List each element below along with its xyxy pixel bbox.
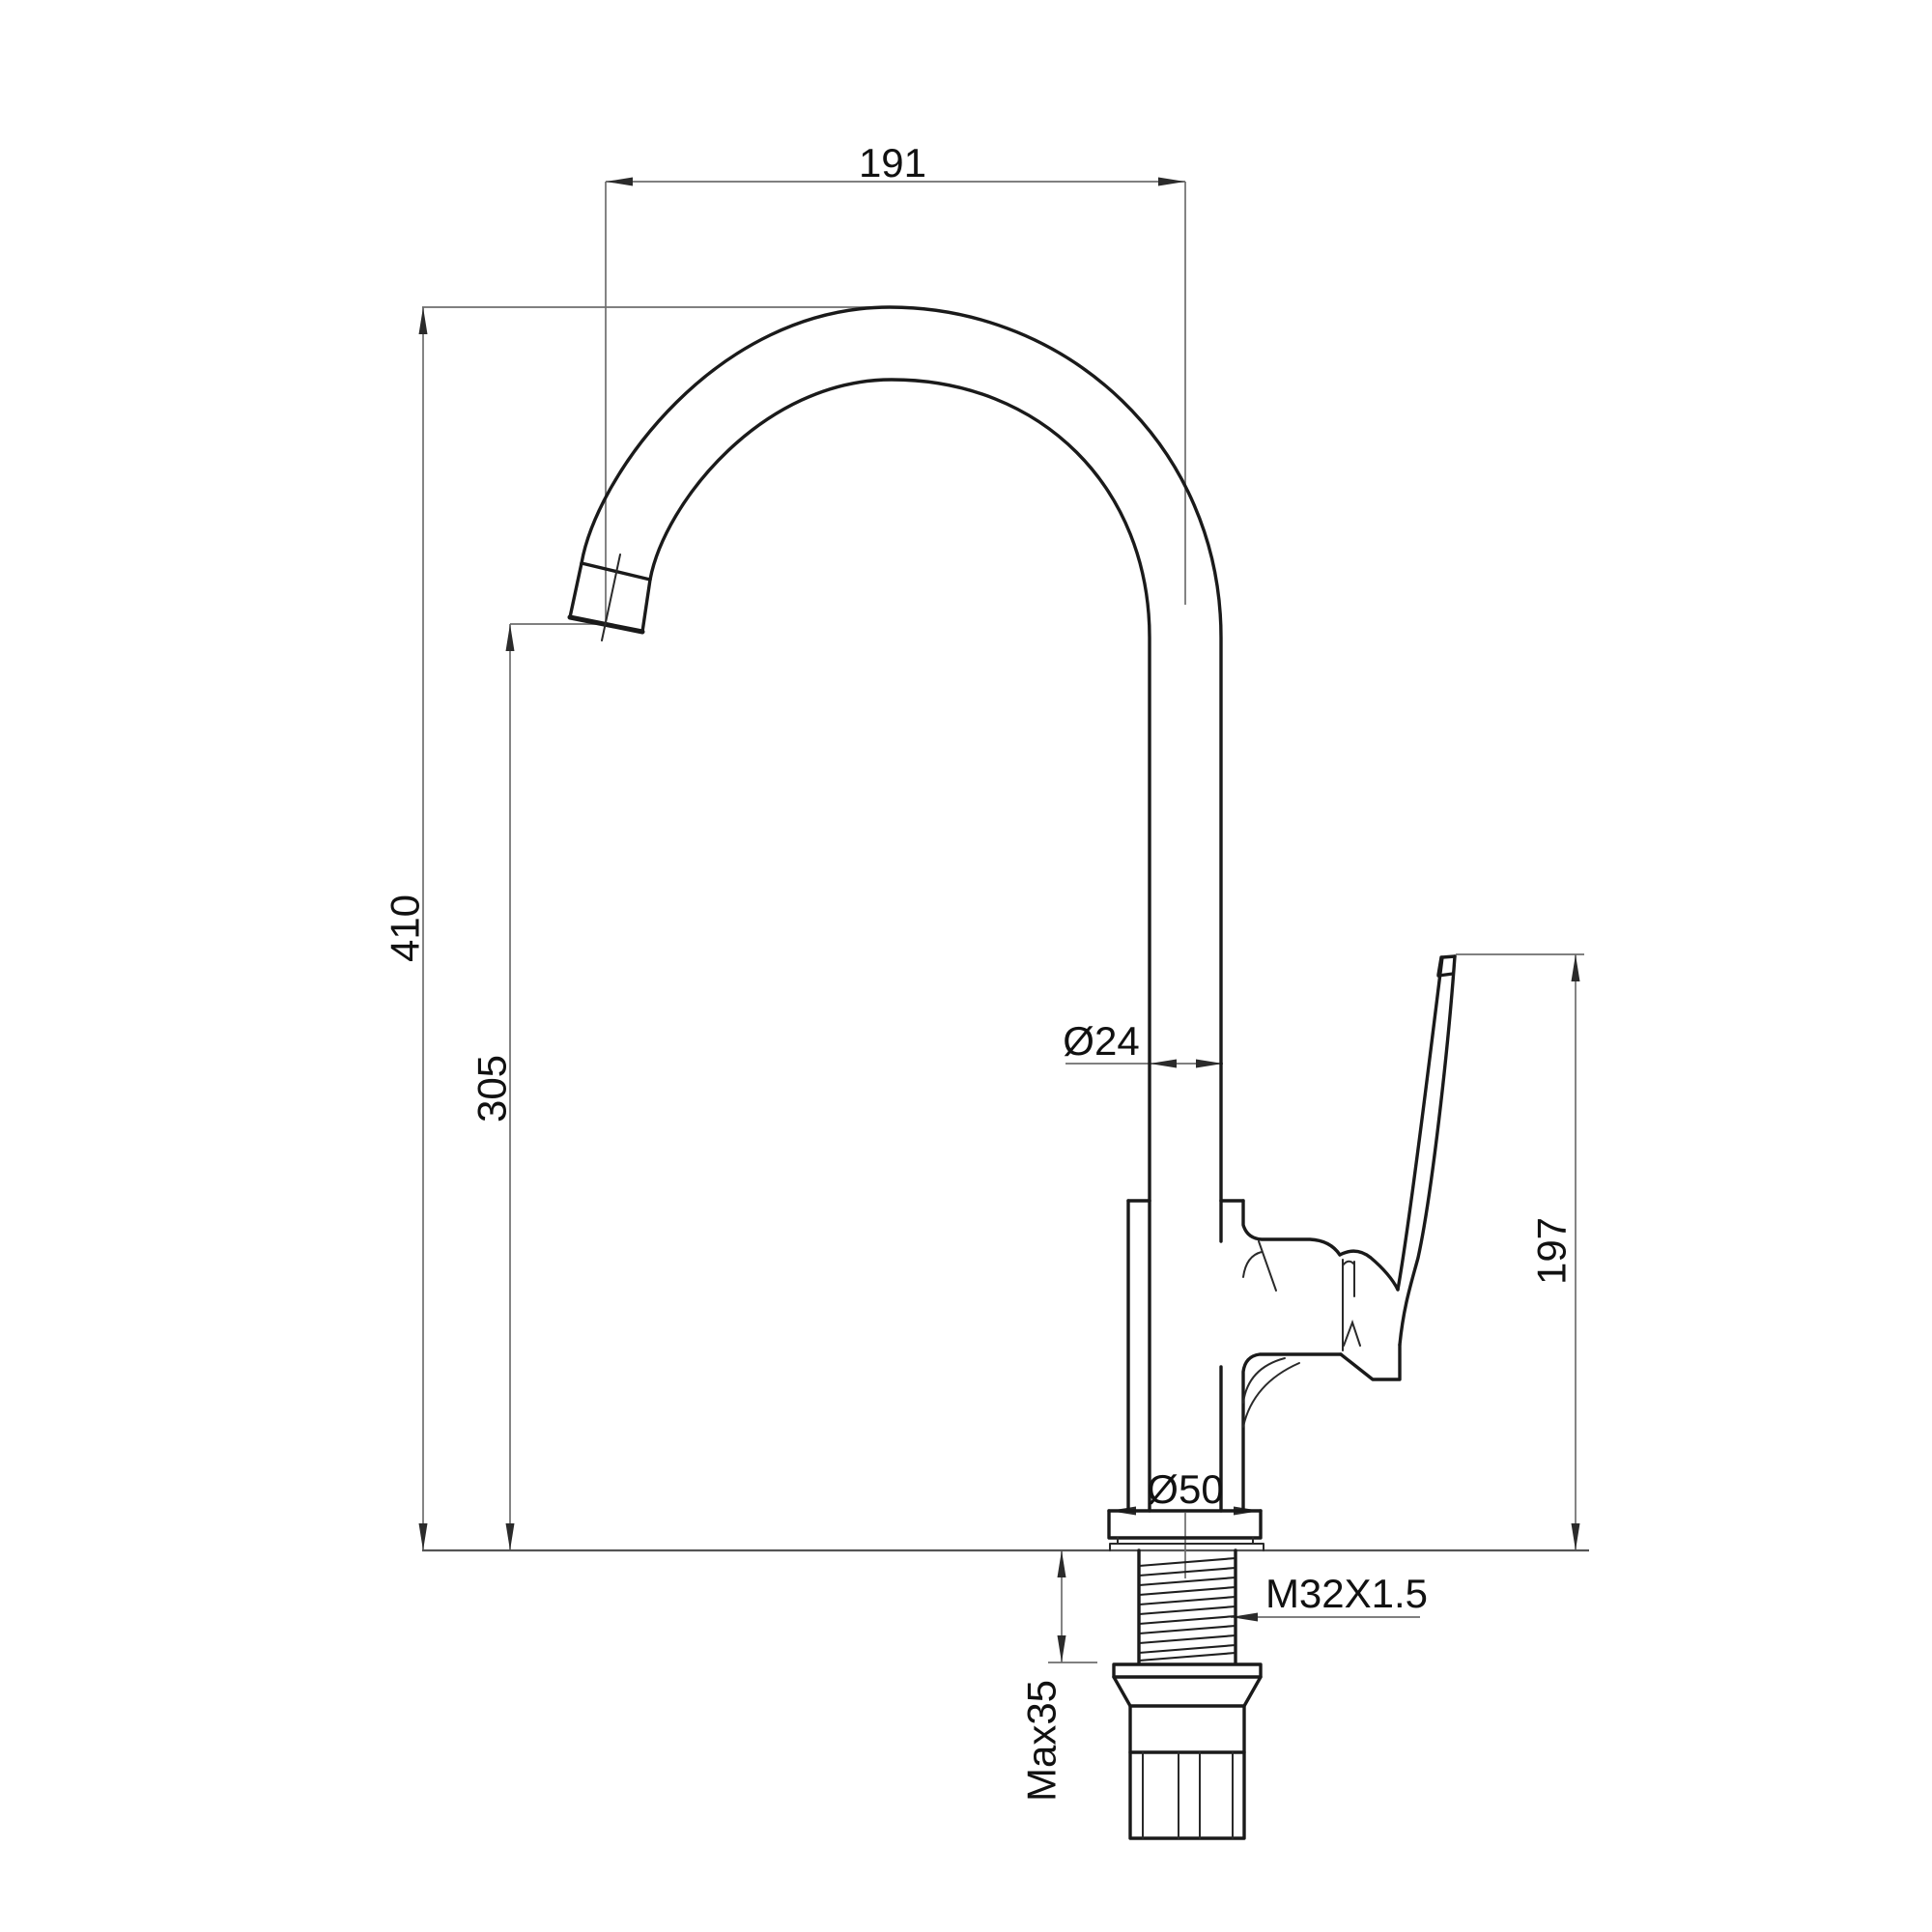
overall-height-label: 410 <box>383 895 428 962</box>
drawing-background <box>0 0 1932 1932</box>
mounting-thread-label: M32X1.5 <box>1265 1571 1428 1616</box>
tube-diameter-label: Ø24 <box>1063 1018 1139 1064</box>
technical-drawing-page: 191 410 305 Ø24 197 Ø50 M32X1.5 Max35 <box>0 0 1932 1932</box>
outlet-height-label: 305 <box>469 1055 515 1122</box>
faucet-drawing-canvas: 191 410 305 Ø24 197 Ø50 M32X1.5 Max35 <box>0 0 1932 1932</box>
handle-height-label: 197 <box>1529 1217 1575 1285</box>
spout-reach-label: 191 <box>859 140 926 185</box>
base-flange-diameter-label: Ø50 <box>1147 1466 1223 1512</box>
max-counter-thickness-label: Max35 <box>1019 1680 1065 1802</box>
